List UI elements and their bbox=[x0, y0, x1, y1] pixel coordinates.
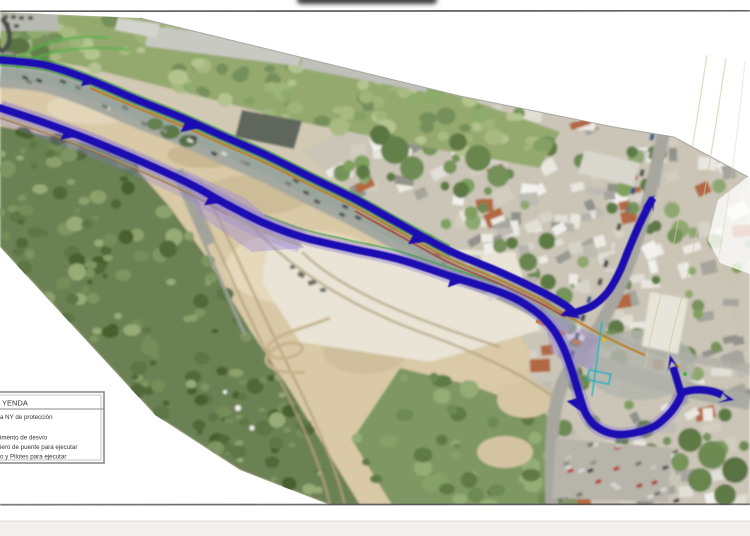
svg-text:o y Pilotes para ejecutar: o y Pilotes para ejecutar bbox=[0, 454, 66, 461]
svg-text:YENDA: YENDA bbox=[2, 399, 28, 408]
svg-text:a NY de protección: a NY de protección bbox=[0, 414, 53, 421]
svg-text:imento de desvío: imento de desvío bbox=[0, 435, 48, 442]
svg-text:iero de puente para ejecutar: iero de puente para ejecutar bbox=[0, 444, 77, 451]
